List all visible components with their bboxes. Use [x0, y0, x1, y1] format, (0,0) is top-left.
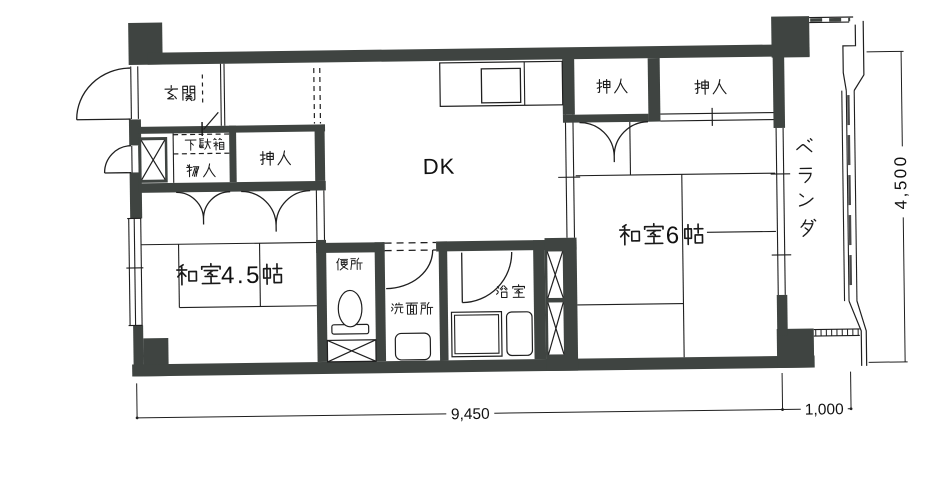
- svg-text:1,000: 1,000: [805, 401, 844, 419]
- svg-text:6: 6: [666, 222, 680, 249]
- svg-text:DK: DK: [423, 154, 456, 179]
- svg-text:4.5: 4.5: [221, 262, 262, 290]
- svg-text:9,450: 9,450: [451, 406, 490, 424]
- svg-text:4,500: 4,500: [891, 154, 911, 209]
